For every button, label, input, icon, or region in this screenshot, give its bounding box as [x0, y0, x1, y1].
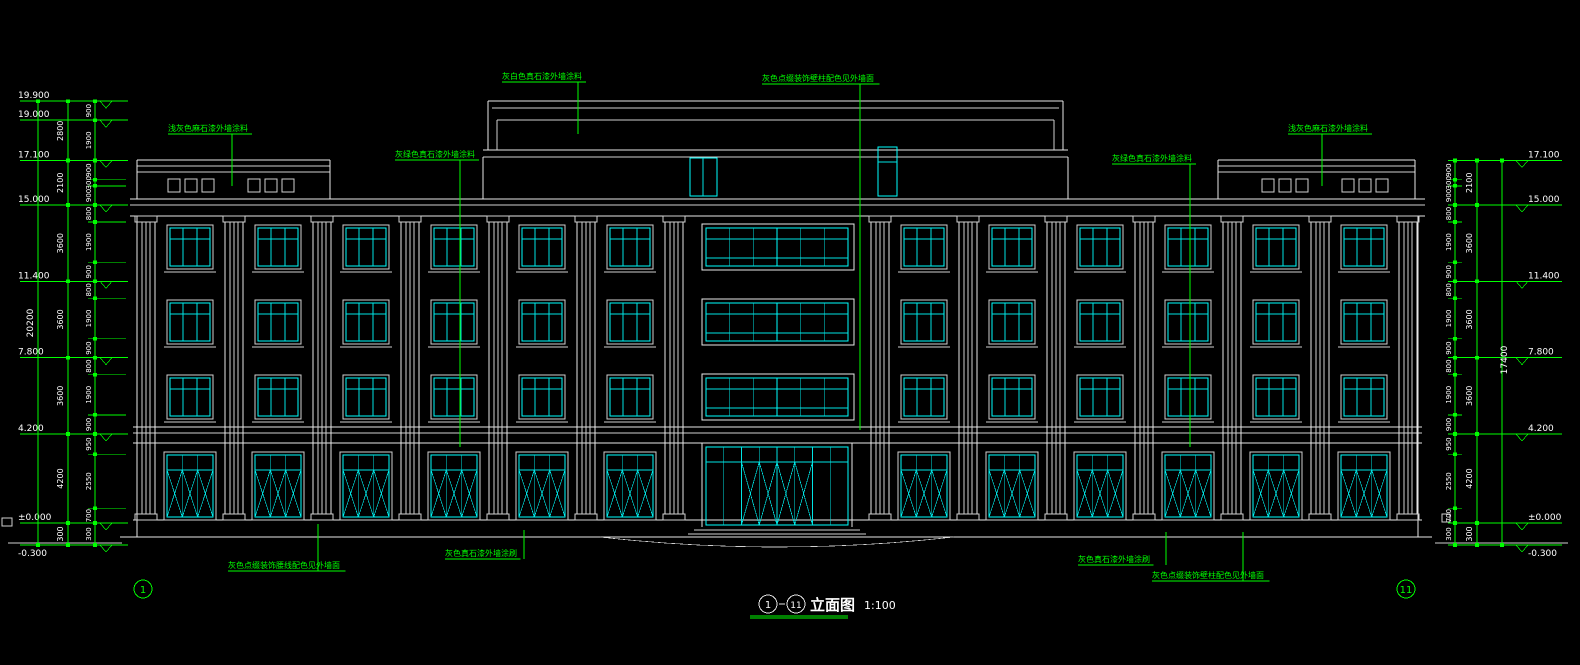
pilaster-capital	[957, 216, 979, 222]
window	[346, 378, 386, 416]
floor-dim-right: 4200	[1465, 468, 1474, 488]
window	[1256, 303, 1296, 341]
dim-tick	[1500, 159, 1504, 163]
pilaster-base	[135, 514, 157, 520]
sub-dim-left: 1900	[85, 310, 93, 328]
level-label-right: 17.100	[1528, 151, 1560, 161]
level-label-left: ±0.000	[18, 513, 52, 523]
pilaster-capital	[311, 216, 333, 222]
floor-dim-right: 3600	[1465, 309, 1474, 329]
window	[610, 228, 650, 266]
level-label-right: 11.400	[1528, 271, 1560, 281]
window	[1344, 378, 1384, 416]
dim-tick	[66, 521, 70, 525]
pilaster-capital	[1133, 216, 1155, 222]
pilaster-base	[311, 514, 333, 520]
window	[992, 378, 1032, 416]
grade-step-left	[2, 518, 12, 526]
window	[610, 303, 650, 341]
overall-dim-right: 17400	[1500, 345, 1510, 374]
ground-window	[901, 455, 947, 517]
level-flag	[100, 205, 112, 212]
window	[258, 303, 298, 341]
window-frame	[167, 375, 213, 419]
pilaster-base	[1397, 514, 1419, 520]
window-frame	[519, 225, 565, 269]
window	[522, 303, 562, 341]
ground-window-frame	[1338, 452, 1390, 520]
level-flag	[100, 358, 112, 365]
window-frame	[1341, 375, 1387, 419]
dim-tick	[66, 159, 70, 163]
level-label-right: ±0.000	[1528, 513, 1562, 523]
ann-top-center: 灰白色真石漆外墙涂料	[502, 71, 582, 81]
dim-tick	[1475, 356, 1479, 360]
ann-bottom-center: 灰色真石漆外墙涂刷	[445, 548, 517, 558]
level-label-right: 4.200	[1528, 424, 1554, 434]
window	[904, 228, 944, 266]
level-label-left: 4.200	[18, 424, 44, 434]
ground-window	[431, 455, 477, 517]
window-frame	[1253, 225, 1299, 269]
dim-tick	[36, 543, 40, 547]
window-frame	[519, 375, 565, 419]
window	[522, 378, 562, 416]
window-frame	[343, 225, 389, 269]
pilaster-base	[1045, 514, 1067, 520]
window-frame	[901, 300, 947, 344]
parapet-deco-block	[1376, 179, 1388, 192]
window	[346, 303, 386, 341]
sub-dim-left: 300	[85, 176, 93, 189]
window-frame	[901, 375, 947, 419]
sub-dim-right: 900	[1445, 163, 1453, 176]
title-bubble-left-label: 1	[765, 600, 771, 611]
pilaster-capital	[487, 216, 509, 222]
sub-dim-left: 800	[85, 207, 93, 220]
window	[434, 378, 474, 416]
level-label-right: 15.000	[1528, 195, 1560, 205]
window-frame	[901, 225, 947, 269]
pilaster-base	[487, 514, 509, 520]
sub-dim-left: 700	[85, 509, 93, 522]
window-frame	[431, 300, 477, 344]
ground-window-frame	[986, 452, 1038, 520]
pilaster-base	[223, 514, 245, 520]
level-label-left: -0.300	[18, 549, 47, 559]
window-frame	[255, 300, 301, 344]
dim-tick	[1475, 159, 1479, 163]
pilaster-base	[957, 514, 979, 520]
level-label-left: 19.900	[18, 91, 50, 101]
window	[992, 303, 1032, 341]
ground-window-frame	[898, 452, 950, 520]
dim-tick	[36, 99, 40, 103]
sub-dim-left: 300	[85, 527, 93, 540]
sub-dim-left: 950	[85, 437, 93, 450]
window-frame	[431, 225, 477, 269]
sub-dim-right: 800	[1445, 283, 1453, 296]
parapet-deco-block	[282, 179, 294, 192]
sub-dim-left: 800	[85, 359, 93, 372]
ground-window-frame	[604, 452, 656, 520]
window-frame	[1341, 300, 1387, 344]
ground-window-frame	[516, 452, 568, 520]
parapet-deco-block	[1342, 179, 1354, 192]
ground-window	[255, 455, 301, 517]
floor-dim-left: 4200	[56, 468, 65, 488]
sub-dim-left: 900	[85, 189, 93, 202]
sub-dim-right: 1900	[1445, 310, 1453, 328]
sub-dim-right: 1900	[1445, 386, 1453, 404]
floor-dim-left: 3600	[56, 386, 65, 406]
ground-window-frame	[340, 452, 392, 520]
window	[1080, 303, 1120, 341]
sub-dim-right: 700	[1445, 509, 1453, 522]
dim-tick	[1475, 543, 1479, 547]
ann-bottom-right-short: 灰色真石漆外墙涂刷	[1078, 554, 1150, 564]
window	[1256, 378, 1296, 416]
parapet-deco-block	[168, 179, 180, 192]
pilaster-base	[1221, 514, 1243, 520]
parapet-deco-block	[1279, 179, 1291, 192]
parapet-deco-block	[1262, 179, 1274, 192]
window-frame	[1165, 375, 1211, 419]
ann-top-left: 浅灰色麻石漆外墙涂料	[168, 123, 248, 133]
roof-hatch-right	[878, 147, 897, 196]
window	[1344, 228, 1384, 266]
window	[992, 228, 1032, 266]
level-flag	[100, 281, 112, 288]
dim-tick	[66, 203, 70, 207]
ground-window	[989, 455, 1035, 517]
window	[170, 303, 210, 341]
pilaster-base	[663, 514, 685, 520]
level-flag	[1516, 434, 1528, 441]
drawing-scale: 1:100	[864, 599, 896, 612]
ground-window	[343, 455, 389, 517]
window	[258, 378, 298, 416]
floor-dim-right: 2100	[1465, 173, 1474, 193]
sub-dim-left: 900	[85, 341, 93, 354]
ann-top-center-right: 灰色点缀装饰壁柱配色见外墙面	[762, 73, 874, 83]
dim-tick	[1475, 521, 1479, 525]
level-label-left: 11.400	[18, 271, 50, 281]
pilaster-base	[1133, 514, 1155, 520]
dim-tick	[1475, 203, 1479, 207]
pilaster-capital	[575, 216, 597, 222]
ann-bottom-right-long: 灰色点缀装饰壁柱配色见外墙面	[1152, 570, 1264, 580]
dim-tick	[1500, 543, 1504, 547]
sub-dim-left: 1900	[85, 233, 93, 251]
pilaster-capital	[663, 216, 685, 222]
window-frame	[1253, 300, 1299, 344]
sub-dim-right: 2550	[1445, 472, 1453, 490]
level-flag	[1516, 358, 1528, 365]
dim-tick	[66, 356, 70, 360]
ribbon-window-frame	[702, 374, 854, 420]
window-frame	[1253, 375, 1299, 419]
window-frame	[1341, 225, 1387, 269]
sub-dim-left: 800	[85, 283, 93, 296]
window-frame	[1077, 225, 1123, 269]
ground-window-frame	[1162, 452, 1214, 520]
level-flag	[100, 120, 112, 127]
window	[1168, 228, 1208, 266]
window	[170, 378, 210, 416]
sub-dim-left: 1900	[85, 131, 93, 149]
sub-dim-right: 800	[1445, 207, 1453, 220]
window-frame	[343, 375, 389, 419]
ann-bottom-left: 灰色点缀装饰腰线配色见外墙面	[228, 560, 340, 570]
level-label-right: -0.300	[1528, 549, 1557, 559]
window	[1080, 378, 1120, 416]
sub-dim-right: 300	[1445, 176, 1453, 189]
pilaster-capital	[399, 216, 421, 222]
floor-dim-right: 3600	[1465, 233, 1474, 253]
dim-tick	[66, 99, 70, 103]
window-frame	[989, 300, 1035, 344]
level-label-left: 15.000	[18, 195, 50, 205]
window-frame	[989, 375, 1035, 419]
floor-dim-left: 2100	[56, 173, 65, 193]
ground-window-frame	[428, 452, 480, 520]
parapet-deco-block	[1296, 179, 1308, 192]
level-label-left: 19.000	[18, 110, 50, 120]
level-flag	[100, 101, 112, 108]
window-frame	[989, 225, 1035, 269]
window-frame	[607, 225, 653, 269]
pilaster-capital	[1397, 216, 1419, 222]
sub-dim-right: 900	[1445, 418, 1453, 431]
level-flag	[1516, 161, 1528, 168]
sub-dim-right: 1900	[1445, 233, 1453, 251]
cad-viewport: 19.90019.00017.10015.00011.4007.8004.200…	[0, 0, 1580, 665]
window	[434, 303, 474, 341]
window	[1168, 378, 1208, 416]
ground-window-frame	[164, 452, 216, 520]
dim-tick	[66, 432, 70, 436]
overall-dim-left: 20200	[26, 308, 36, 337]
window	[904, 378, 944, 416]
window	[1168, 303, 1208, 341]
ground-window-frame	[1074, 452, 1126, 520]
level-flag	[1516, 545, 1528, 552]
sub-dim-right: 900	[1445, 189, 1453, 202]
ribbon-window-frame	[702, 299, 854, 345]
window	[434, 228, 474, 266]
level-flag	[100, 545, 112, 552]
sub-dim-left: 900	[85, 104, 93, 117]
ann-mid-left: 灰绿色真石漆外墙涂料	[395, 149, 475, 159]
floor-dim-right: 300	[1465, 526, 1474, 541]
parapet-deco-block	[202, 179, 214, 192]
sub-dim-left: 900	[85, 163, 93, 176]
sub-dim-right: 300	[1445, 527, 1453, 540]
pilaster-capital	[135, 216, 157, 222]
window-frame	[1077, 300, 1123, 344]
floor-dim-right: 3600	[1465, 386, 1474, 406]
ground-window	[167, 455, 213, 517]
ann-mid-right: 灰绿色真石漆外墙涂料	[1112, 153, 1192, 163]
level-label-left: 7.800	[18, 348, 44, 358]
sub-dim-right: 900	[1445, 265, 1453, 278]
window	[346, 228, 386, 266]
sub-dim-left: 1900	[85, 386, 93, 404]
axis-bubble-right-label: 11	[1400, 585, 1413, 596]
entrance-apron-curve	[600, 537, 954, 547]
window-frame	[167, 225, 213, 269]
sub-dim-right: 950	[1445, 437, 1453, 450]
ground-window	[1077, 455, 1123, 517]
pilaster-capital	[869, 216, 891, 222]
ground-window	[1253, 455, 1299, 517]
floor-dim-left: 2800	[56, 121, 65, 141]
dim-tick	[1475, 432, 1479, 436]
pilaster-base	[1309, 514, 1331, 520]
window	[610, 378, 650, 416]
pilaster-capital	[1309, 216, 1331, 222]
pilaster-capital	[1221, 216, 1243, 222]
ground-window-frame	[252, 452, 304, 520]
title-bubble-right-label: 11	[790, 601, 801, 611]
dim-tick	[1475, 280, 1479, 284]
sub-dim-right: 900	[1445, 341, 1453, 354]
parapet-deco-block	[185, 179, 197, 192]
level-flag	[100, 434, 112, 441]
window-frame	[519, 300, 565, 344]
ground-window	[519, 455, 565, 517]
axis-bubble-left-label: 1	[140, 585, 146, 596]
window-frame	[607, 300, 653, 344]
ground-window-frame	[1250, 452, 1302, 520]
sub-dim-left: 900	[85, 418, 93, 431]
dim-tick	[66, 543, 70, 547]
ground-window	[607, 455, 653, 517]
level-label-left: 17.100	[18, 151, 50, 161]
floor-dim-left: 300	[56, 526, 65, 541]
pilaster-capital	[223, 216, 245, 222]
window-frame	[431, 375, 477, 419]
window-frame	[255, 375, 301, 419]
pilaster-capital	[1045, 216, 1067, 222]
level-flag	[100, 161, 112, 168]
level-flag	[1516, 281, 1528, 288]
pilaster-base	[399, 514, 421, 520]
ground-window	[1165, 455, 1211, 517]
dim-tick	[66, 280, 70, 284]
level-flag	[1516, 523, 1528, 530]
parapet-deco-block	[248, 179, 260, 192]
sub-dim-left: 2550	[85, 472, 93, 490]
drawing-title: 立面图	[810, 596, 855, 614]
window	[904, 303, 944, 341]
window-frame	[255, 225, 301, 269]
window	[170, 228, 210, 266]
ground-window	[1341, 455, 1387, 517]
window	[1256, 228, 1296, 266]
window-frame	[1077, 375, 1123, 419]
ribbon-window-frame	[702, 224, 854, 270]
window	[522, 228, 562, 266]
floor-dim-left: 3600	[56, 309, 65, 329]
parapet-deco-block	[1359, 179, 1371, 192]
window-frame	[607, 375, 653, 419]
floor-dim-left: 3600	[56, 233, 65, 253]
level-flag	[100, 523, 112, 530]
level-label-right: 7.800	[1528, 348, 1554, 358]
pilaster-base	[575, 514, 597, 520]
sub-dim-right: 800	[1445, 359, 1453, 372]
window-frame	[1165, 225, 1211, 269]
window	[1080, 228, 1120, 266]
window-frame	[1165, 300, 1211, 344]
sub-dim-left: 900	[85, 265, 93, 278]
window	[1344, 303, 1384, 341]
roof-hatch-left	[690, 158, 717, 196]
ann-top-right: 浅灰色麻石漆外墙涂料	[1288, 123, 1368, 133]
level-flag	[1516, 205, 1528, 212]
elevation-drawing: 19.90019.00017.10015.00011.4007.8004.200…	[0, 0, 1580, 665]
window	[258, 228, 298, 266]
window-frame	[167, 300, 213, 344]
window-frame	[343, 300, 389, 344]
pilaster-base	[869, 514, 891, 520]
parapet-deco-block	[265, 179, 277, 192]
